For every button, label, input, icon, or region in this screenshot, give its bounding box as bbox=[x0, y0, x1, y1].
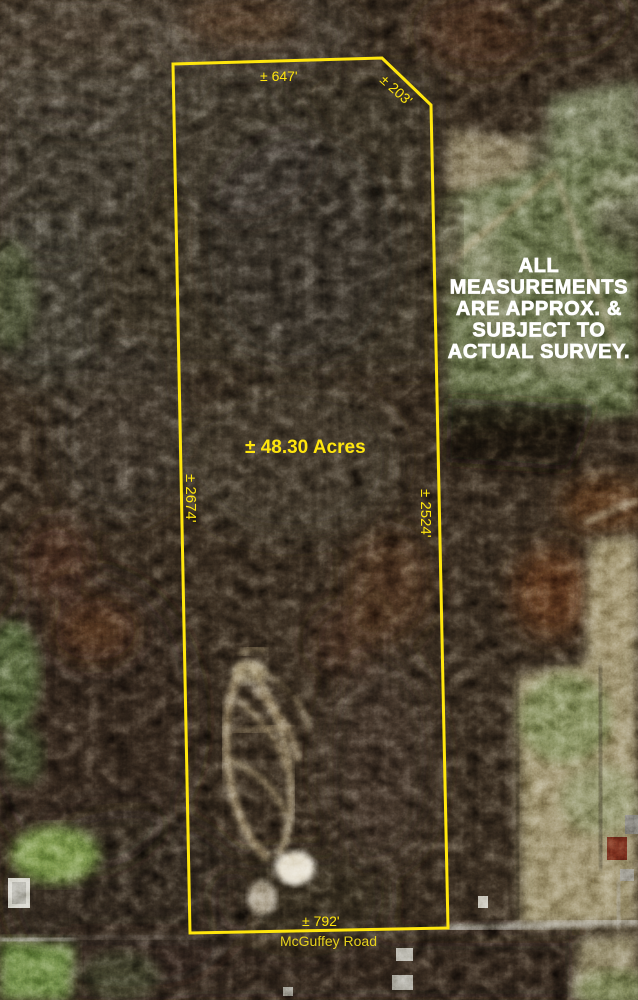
svg-text:SUBJECT TO: SUBJECT TO bbox=[472, 320, 605, 342]
svg-text:± 2674': ± 2674' bbox=[182, 474, 199, 523]
svg-text:ALL: ALL bbox=[519, 255, 560, 277]
svg-text:± 647': ± 647' bbox=[260, 68, 298, 84]
svg-text:McGuffey Road: McGuffey Road bbox=[280, 933, 377, 949]
svg-text:MEASUREMENTS: MEASUREMENTS bbox=[450, 277, 628, 299]
svg-text:ACTUAL SURVEY.: ACTUAL SURVEY. bbox=[448, 341, 630, 363]
svg-text:± 792': ± 792' bbox=[302, 913, 340, 929]
svg-text:± 2524': ± 2524' bbox=[417, 489, 434, 538]
svg-text:± 48.30 Acres: ± 48.30 Acres bbox=[245, 437, 366, 458]
svg-text:ARE APPROX. &: ARE APPROX. & bbox=[456, 298, 622, 320]
